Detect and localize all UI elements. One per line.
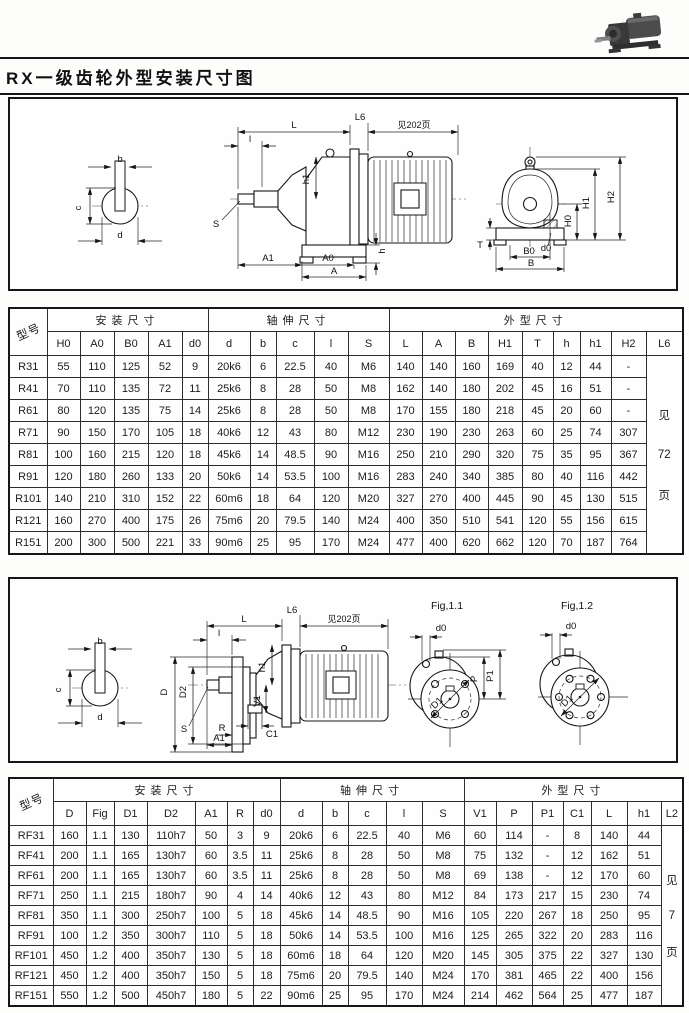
value-cell: 110h7	[147, 826, 195, 846]
value-cell: 60	[522, 422, 553, 444]
model-cell: R121	[9, 510, 47, 532]
value-cell: 3.5	[227, 846, 253, 866]
value-cell: 20	[250, 510, 276, 532]
value-cell: 3	[227, 826, 253, 846]
value-cell: 75	[464, 846, 496, 866]
value-cell: 28	[276, 378, 314, 400]
table-row: R315511012552920k6622.540M61401401601694…	[9, 356, 683, 378]
value-cell: 60	[464, 826, 496, 846]
value-cell: 22	[182, 488, 208, 510]
model-cell: R81	[9, 444, 47, 466]
value-cell: 22.5	[276, 356, 314, 378]
value-cell: 190	[422, 422, 455, 444]
value-cell: 156	[627, 966, 661, 986]
value-cell: 135	[114, 378, 148, 400]
value-cell: 16	[553, 378, 580, 400]
value-cell: 250	[591, 906, 627, 926]
value-cell: 20	[322, 966, 348, 986]
value-cell: 200	[53, 846, 86, 866]
model-cell: R31	[9, 356, 47, 378]
value-cell: 90	[522, 488, 553, 510]
value-cell: 230	[591, 886, 627, 906]
dim-label-d: d	[97, 712, 102, 723]
column-header: D1	[114, 802, 147, 826]
table-row: RF911001.2350300h711051850k61453.5100M16…	[9, 926, 683, 946]
value-cell: 90m6	[208, 532, 250, 555]
value-cell: 48.5	[276, 444, 314, 466]
value-cell: 125	[464, 926, 496, 946]
see-page-note-line: 见	[666, 872, 678, 888]
model-column-header: 型号	[9, 308, 47, 356]
value-cell: 217	[532, 886, 563, 906]
dim-label-L6: L6	[355, 112, 366, 123]
column-header: b	[250, 332, 276, 356]
value-cell: 80	[386, 886, 422, 906]
foot-mounted-drawing: b c d	[10, 99, 676, 289]
value-cell: 250	[53, 886, 86, 906]
value-cell: 462	[496, 986, 532, 1007]
column-header: d0	[253, 802, 280, 826]
value-cell: 100	[386, 926, 422, 946]
value-cell: 53.5	[348, 926, 386, 946]
table-row: RF612001.1165130h7603.51125k682850M86913…	[9, 866, 683, 886]
value-cell: 60	[580, 400, 611, 422]
value-cell: 307	[611, 422, 646, 444]
dim-label-L6: L6	[287, 605, 298, 616]
value-cell: 14	[322, 926, 348, 946]
value-cell: 138	[496, 866, 532, 886]
value-cell: 14	[322, 906, 348, 926]
value-cell: 150	[195, 966, 227, 986]
value-cell: 110	[195, 926, 227, 946]
column-header: H2	[611, 332, 646, 356]
value-cell: M6	[348, 356, 389, 378]
value-cell: 210	[80, 488, 114, 510]
value-cell: 187	[627, 986, 661, 1007]
dimension-table-rf-series: 型号 安装尺寸 轴伸尺寸 外型尺寸 DFigD1D2A1Rd0dbclSV1PP…	[8, 777, 684, 1007]
value-cell: 442	[611, 466, 646, 488]
dimension-table-r-series: 型号 安装尺寸 轴伸尺寸 外型尺寸 H0A0B0A1d0dbclSLABH1Th…	[8, 307, 684, 555]
see-page-note: 见202页	[327, 614, 360, 624]
value-cell: 40k6	[280, 886, 322, 906]
table-row: RF1214501.2400350h715051875m62079.5140M2…	[9, 966, 683, 986]
value-cell: 300	[114, 906, 147, 926]
value-cell: M6	[422, 826, 464, 846]
gear-motor-photo-image	[591, 10, 669, 56]
value-cell: 25k6	[208, 400, 250, 422]
value-cell: 3.5	[227, 866, 253, 886]
value-cell: 450	[53, 946, 86, 966]
value-cell: 327	[389, 488, 422, 510]
value-cell: M8	[422, 866, 464, 886]
value-cell: 400	[422, 532, 455, 555]
value-cell: 55	[47, 356, 80, 378]
dim-label-L: L	[291, 120, 296, 131]
dim-label-T: T	[477, 240, 483, 251]
value-cell: 14	[182, 400, 208, 422]
value-cell: 140	[389, 356, 422, 378]
value-cell: 95	[580, 444, 611, 466]
dim-label-P: P	[469, 676, 480, 682]
value-cell: 140	[591, 826, 627, 846]
model-cell: R61	[9, 400, 47, 422]
value-cell: 145	[464, 946, 496, 966]
value-cell: 8	[563, 826, 591, 846]
value-cell: 18	[182, 422, 208, 444]
value-cell: 615	[611, 510, 646, 532]
value-cell: 11	[253, 846, 280, 866]
value-cell: 500	[114, 986, 147, 1007]
value-cell: 25	[250, 532, 276, 555]
value-cell: 28	[348, 866, 386, 886]
value-cell: 450h7	[147, 986, 195, 1007]
column-header: A	[422, 332, 455, 356]
diagram-panel-flange-mounted: b c d	[8, 577, 678, 763]
value-cell: 100	[314, 466, 348, 488]
group-header-install: 安装尺寸	[53, 778, 280, 802]
value-cell: 8	[250, 400, 276, 422]
value-cell: 350h7	[147, 966, 195, 986]
value-cell: 51	[627, 846, 661, 866]
value-cell: 130	[580, 488, 611, 510]
dim-label-B0: B0	[523, 246, 535, 257]
value-cell: 515	[611, 488, 646, 510]
value-cell: 250	[389, 444, 422, 466]
value-cell: 28	[348, 846, 386, 866]
value-cell: 120	[386, 946, 422, 966]
column-header: H1	[488, 332, 522, 356]
column-header: b	[322, 802, 348, 826]
column-header: A0	[80, 332, 114, 356]
value-cell: 267	[532, 906, 563, 926]
catalog-page: RX一级齿轮外型安装尺寸图 b	[0, 0, 689, 1013]
column-header: S	[348, 332, 389, 356]
value-cell: 140	[422, 378, 455, 400]
model-cell: RF81	[9, 906, 53, 926]
value-cell: 5	[227, 906, 253, 926]
value-cell: 1.1	[86, 846, 114, 866]
value-cell: 69	[464, 866, 496, 886]
column-header: h1	[627, 802, 661, 826]
value-cell: 40	[553, 466, 580, 488]
value-cell: 180	[195, 986, 227, 1007]
dim-label-c: c	[73, 205, 84, 210]
flange-mounted-drawing: b c d	[10, 579, 676, 761]
table-row: R1211602704001752675m62079.5140M24400350…	[9, 510, 683, 532]
dim-label-b: b	[117, 154, 122, 165]
value-cell: 155	[422, 400, 455, 422]
value-cell: 14	[250, 466, 276, 488]
value-cell: 130	[195, 946, 227, 966]
value-cell: 25	[322, 986, 348, 1007]
value-cell: 80	[522, 466, 553, 488]
value-cell: 18	[322, 946, 348, 966]
group-header-shaft: 轴伸尺寸	[280, 778, 464, 802]
value-cell: 620	[455, 532, 488, 555]
value-cell: 25k6	[280, 866, 322, 886]
flange-view-fig12: Fig,1.2 d0	[538, 600, 628, 745]
dim-label-C1: C1	[266, 729, 278, 740]
value-cell: 50	[314, 400, 348, 422]
dim-label-P1: P1	[485, 670, 496, 682]
value-cell: 210	[422, 444, 455, 466]
value-cell: 180	[455, 378, 488, 400]
value-cell: 20	[182, 466, 208, 488]
value-cell: 79.5	[348, 966, 386, 986]
dim-label-V1: V1	[252, 695, 263, 707]
model-cell: RF121	[9, 966, 53, 986]
value-cell: 74	[627, 886, 661, 906]
value-cell: 75	[522, 444, 553, 466]
value-cell: 120	[522, 510, 553, 532]
value-cell: 110	[80, 356, 114, 378]
dim-label-d0: d0	[436, 623, 447, 634]
table-row: RF1014501.2400350h713051860m61864120M201…	[9, 946, 683, 966]
column-header-row: H0A0B0A1d0dbclSLABH1Thh1H2L6	[9, 332, 683, 356]
model-cell: RF61	[9, 866, 53, 886]
value-cell: 120	[80, 400, 114, 422]
value-cell: 200	[47, 532, 80, 555]
dim-label-c: c	[53, 687, 64, 692]
value-cell: 170	[386, 986, 422, 1007]
value-cell: 187	[580, 532, 611, 555]
value-cell: 18	[253, 946, 280, 966]
column-header: C1	[563, 802, 591, 826]
column-header: d	[280, 802, 322, 826]
value-cell: 51	[580, 378, 611, 400]
value-cell: 165	[114, 846, 147, 866]
value-cell: 11	[253, 866, 280, 886]
value-cell: 450	[53, 966, 86, 986]
value-cell: 465	[532, 966, 563, 986]
value-cell: 260	[114, 466, 148, 488]
value-cell: 12	[322, 886, 348, 906]
value-cell: 215	[114, 444, 148, 466]
column-header: L	[591, 802, 627, 826]
value-cell: 75m6	[208, 510, 250, 532]
column-header: R	[227, 802, 253, 826]
value-cell: 12	[563, 846, 591, 866]
title-block: RX一级齿轮外型安装尺寸图	[0, 57, 689, 95]
column-header: D2	[147, 802, 195, 826]
value-cell: 95	[627, 906, 661, 926]
value-cell: 60	[195, 866, 227, 886]
value-cell: 1.2	[86, 986, 114, 1007]
value-cell: 90	[386, 906, 422, 926]
value-cell: 283	[389, 466, 422, 488]
value-cell: 25	[563, 986, 591, 1007]
column-header: B0	[114, 332, 148, 356]
column-header: P	[496, 802, 532, 826]
value-cell: 477	[591, 986, 627, 1007]
value-cell: 11	[182, 378, 208, 400]
value-cell: 400	[455, 488, 488, 510]
page-title: RX一级齿轮外型安装尺寸图	[6, 64, 689, 89]
value-cell: 12	[250, 422, 276, 444]
value-cell: 6	[250, 356, 276, 378]
value-cell: 400	[591, 966, 627, 986]
value-cell: 45	[522, 378, 553, 400]
value-cell: 45	[553, 488, 580, 510]
value-cell: 1.1	[86, 886, 114, 906]
value-cell: 35	[553, 444, 580, 466]
value-cell: 400	[114, 946, 147, 966]
value-cell: 170	[389, 400, 422, 422]
value-cell: -	[611, 400, 646, 422]
value-cell: 60m6	[280, 946, 322, 966]
value-cell: 230	[389, 422, 422, 444]
value-cell: 114	[496, 826, 532, 846]
value-cell: 20k6	[280, 826, 322, 846]
value-cell: 214	[464, 986, 496, 1007]
table-row: R1011402103101522260m61864120M2032727040…	[9, 488, 683, 510]
column-header: Fig	[86, 802, 114, 826]
value-cell: M16	[422, 906, 464, 926]
column-header: c	[348, 802, 386, 826]
value-cell: 20	[563, 926, 591, 946]
value-cell: M20	[422, 946, 464, 966]
dim-label-D: D	[159, 688, 170, 695]
column-header: B	[455, 332, 488, 356]
column-header: L6	[646, 332, 683, 356]
value-cell: 160	[53, 826, 86, 846]
column-header: l	[314, 332, 348, 356]
column-header: c	[276, 332, 314, 356]
value-cell: 170	[591, 866, 627, 886]
value-cell: 18	[253, 966, 280, 986]
value-cell: 152	[148, 488, 182, 510]
model-cell: R91	[9, 466, 47, 488]
value-cell: 125	[114, 356, 148, 378]
table-row: RF712501.1215180h79041440k6124380M128417…	[9, 886, 683, 906]
dim-label-d: d	[117, 230, 122, 241]
value-cell: 55	[553, 510, 580, 532]
value-cell: 25k6	[208, 378, 250, 400]
model-cell: RF71	[9, 886, 53, 906]
table-row: RF412001.1165130h7603.51125k682850M87513…	[9, 846, 683, 866]
value-cell: 162	[591, 846, 627, 866]
value-cell: 64	[276, 488, 314, 510]
value-cell: 90	[314, 444, 348, 466]
value-cell: 28	[276, 400, 314, 422]
table-body: R315511012552920k6622.540M61401401601694…	[9, 356, 683, 555]
value-cell: 45	[522, 400, 553, 422]
value-cell: 50	[386, 846, 422, 866]
value-cell: 170	[314, 532, 348, 555]
value-cell: 173	[496, 886, 532, 906]
group-header-outline: 外型尺寸	[389, 308, 683, 332]
see-page-note-line: 页	[659, 487, 671, 503]
table-body: RF311601.1130110h7503920k6622.540M660114…	[9, 826, 683, 1007]
model-cell: RF151	[9, 986, 53, 1007]
fig12-title: Fig,1.2	[561, 600, 593, 612]
value-cell: 400	[389, 510, 422, 532]
value-cell: 50k6	[280, 926, 322, 946]
value-cell: 8	[250, 378, 276, 400]
value-cell: 25k6	[280, 846, 322, 866]
value-cell: 5	[227, 926, 253, 946]
group-header-install: 安装尺寸	[47, 308, 208, 332]
value-cell: 22	[563, 946, 591, 966]
value-cell: 340	[455, 466, 488, 488]
value-cell: M12	[422, 886, 464, 906]
column-header: l	[386, 802, 422, 826]
dim-label-h1: h1	[257, 662, 268, 673]
value-cell: 18	[182, 444, 208, 466]
value-cell: 120	[522, 532, 553, 555]
value-cell: 5	[227, 946, 253, 966]
value-cell: 510	[455, 510, 488, 532]
table-header: 型号 安装尺寸 轴伸尺寸 外型尺寸 DFigD1D2A1Rd0dbclSV1PP…	[9, 778, 683, 826]
value-cell: 18	[253, 906, 280, 926]
table-row: R1512003005002213390m62595170M2447740062…	[9, 532, 683, 555]
shaft-section-view: b c d	[53, 636, 142, 727]
column-header: D	[53, 802, 86, 826]
value-cell: 250h7	[147, 906, 195, 926]
value-cell: 8	[322, 866, 348, 886]
value-cell: 265	[496, 926, 532, 946]
column-header: V1	[464, 802, 496, 826]
table-row: R6180120135751425k682850M817015518021845…	[9, 400, 683, 422]
value-cell: 140	[386, 966, 422, 986]
value-cell: 14	[250, 444, 276, 466]
value-cell: 8	[322, 846, 348, 866]
model-cell: R101	[9, 488, 47, 510]
value-cell: 130	[627, 946, 661, 966]
model-column-header: 型号	[9, 778, 53, 826]
column-header: d	[208, 332, 250, 356]
value-cell: 1.2	[86, 926, 114, 946]
value-cell: 40	[522, 356, 553, 378]
value-cell: 33	[182, 532, 208, 555]
value-cell: 95	[276, 532, 314, 555]
dim-label-l: l	[218, 628, 220, 639]
value-cell: 381	[496, 966, 532, 986]
value-cell: 1.1	[86, 866, 114, 886]
value-cell: 9	[182, 356, 208, 378]
value-cell: M24	[348, 510, 389, 532]
flange-view-fig11: Fig,1.1 d0	[408, 600, 506, 747]
value-cell: 43	[348, 886, 386, 906]
value-cell: 156	[580, 510, 611, 532]
value-cell: 385	[488, 466, 522, 488]
dim-label-A: A	[331, 266, 338, 277]
table-row: RF311601.1130110h7503920k6622.540M660114…	[9, 826, 683, 846]
value-cell: 4	[227, 886, 253, 906]
gear-motor-photo	[591, 10, 669, 56]
value-cell: 160	[455, 356, 488, 378]
value-cell: 350h7	[147, 946, 195, 966]
value-cell: 12	[553, 356, 580, 378]
value-cell: 26	[182, 510, 208, 532]
value-cell: 477	[389, 532, 422, 555]
value-cell: 270	[80, 510, 114, 532]
value-cell: 70	[553, 532, 580, 555]
value-cell: 445	[488, 488, 522, 510]
value-cell: 350	[114, 926, 147, 946]
fig11-title: Fig,1.1	[431, 600, 463, 612]
value-cell: 100	[195, 906, 227, 926]
value-cell: 120	[148, 444, 182, 466]
value-cell: 5	[227, 966, 253, 986]
value-cell: M16	[422, 926, 464, 946]
dim-label-A0: A0	[322, 253, 334, 264]
value-cell: 162	[389, 378, 422, 400]
dim-label-A1: A1	[213, 733, 225, 744]
value-cell: M12	[348, 422, 389, 444]
value-cell: 120	[47, 466, 80, 488]
value-cell: 200	[53, 866, 86, 886]
